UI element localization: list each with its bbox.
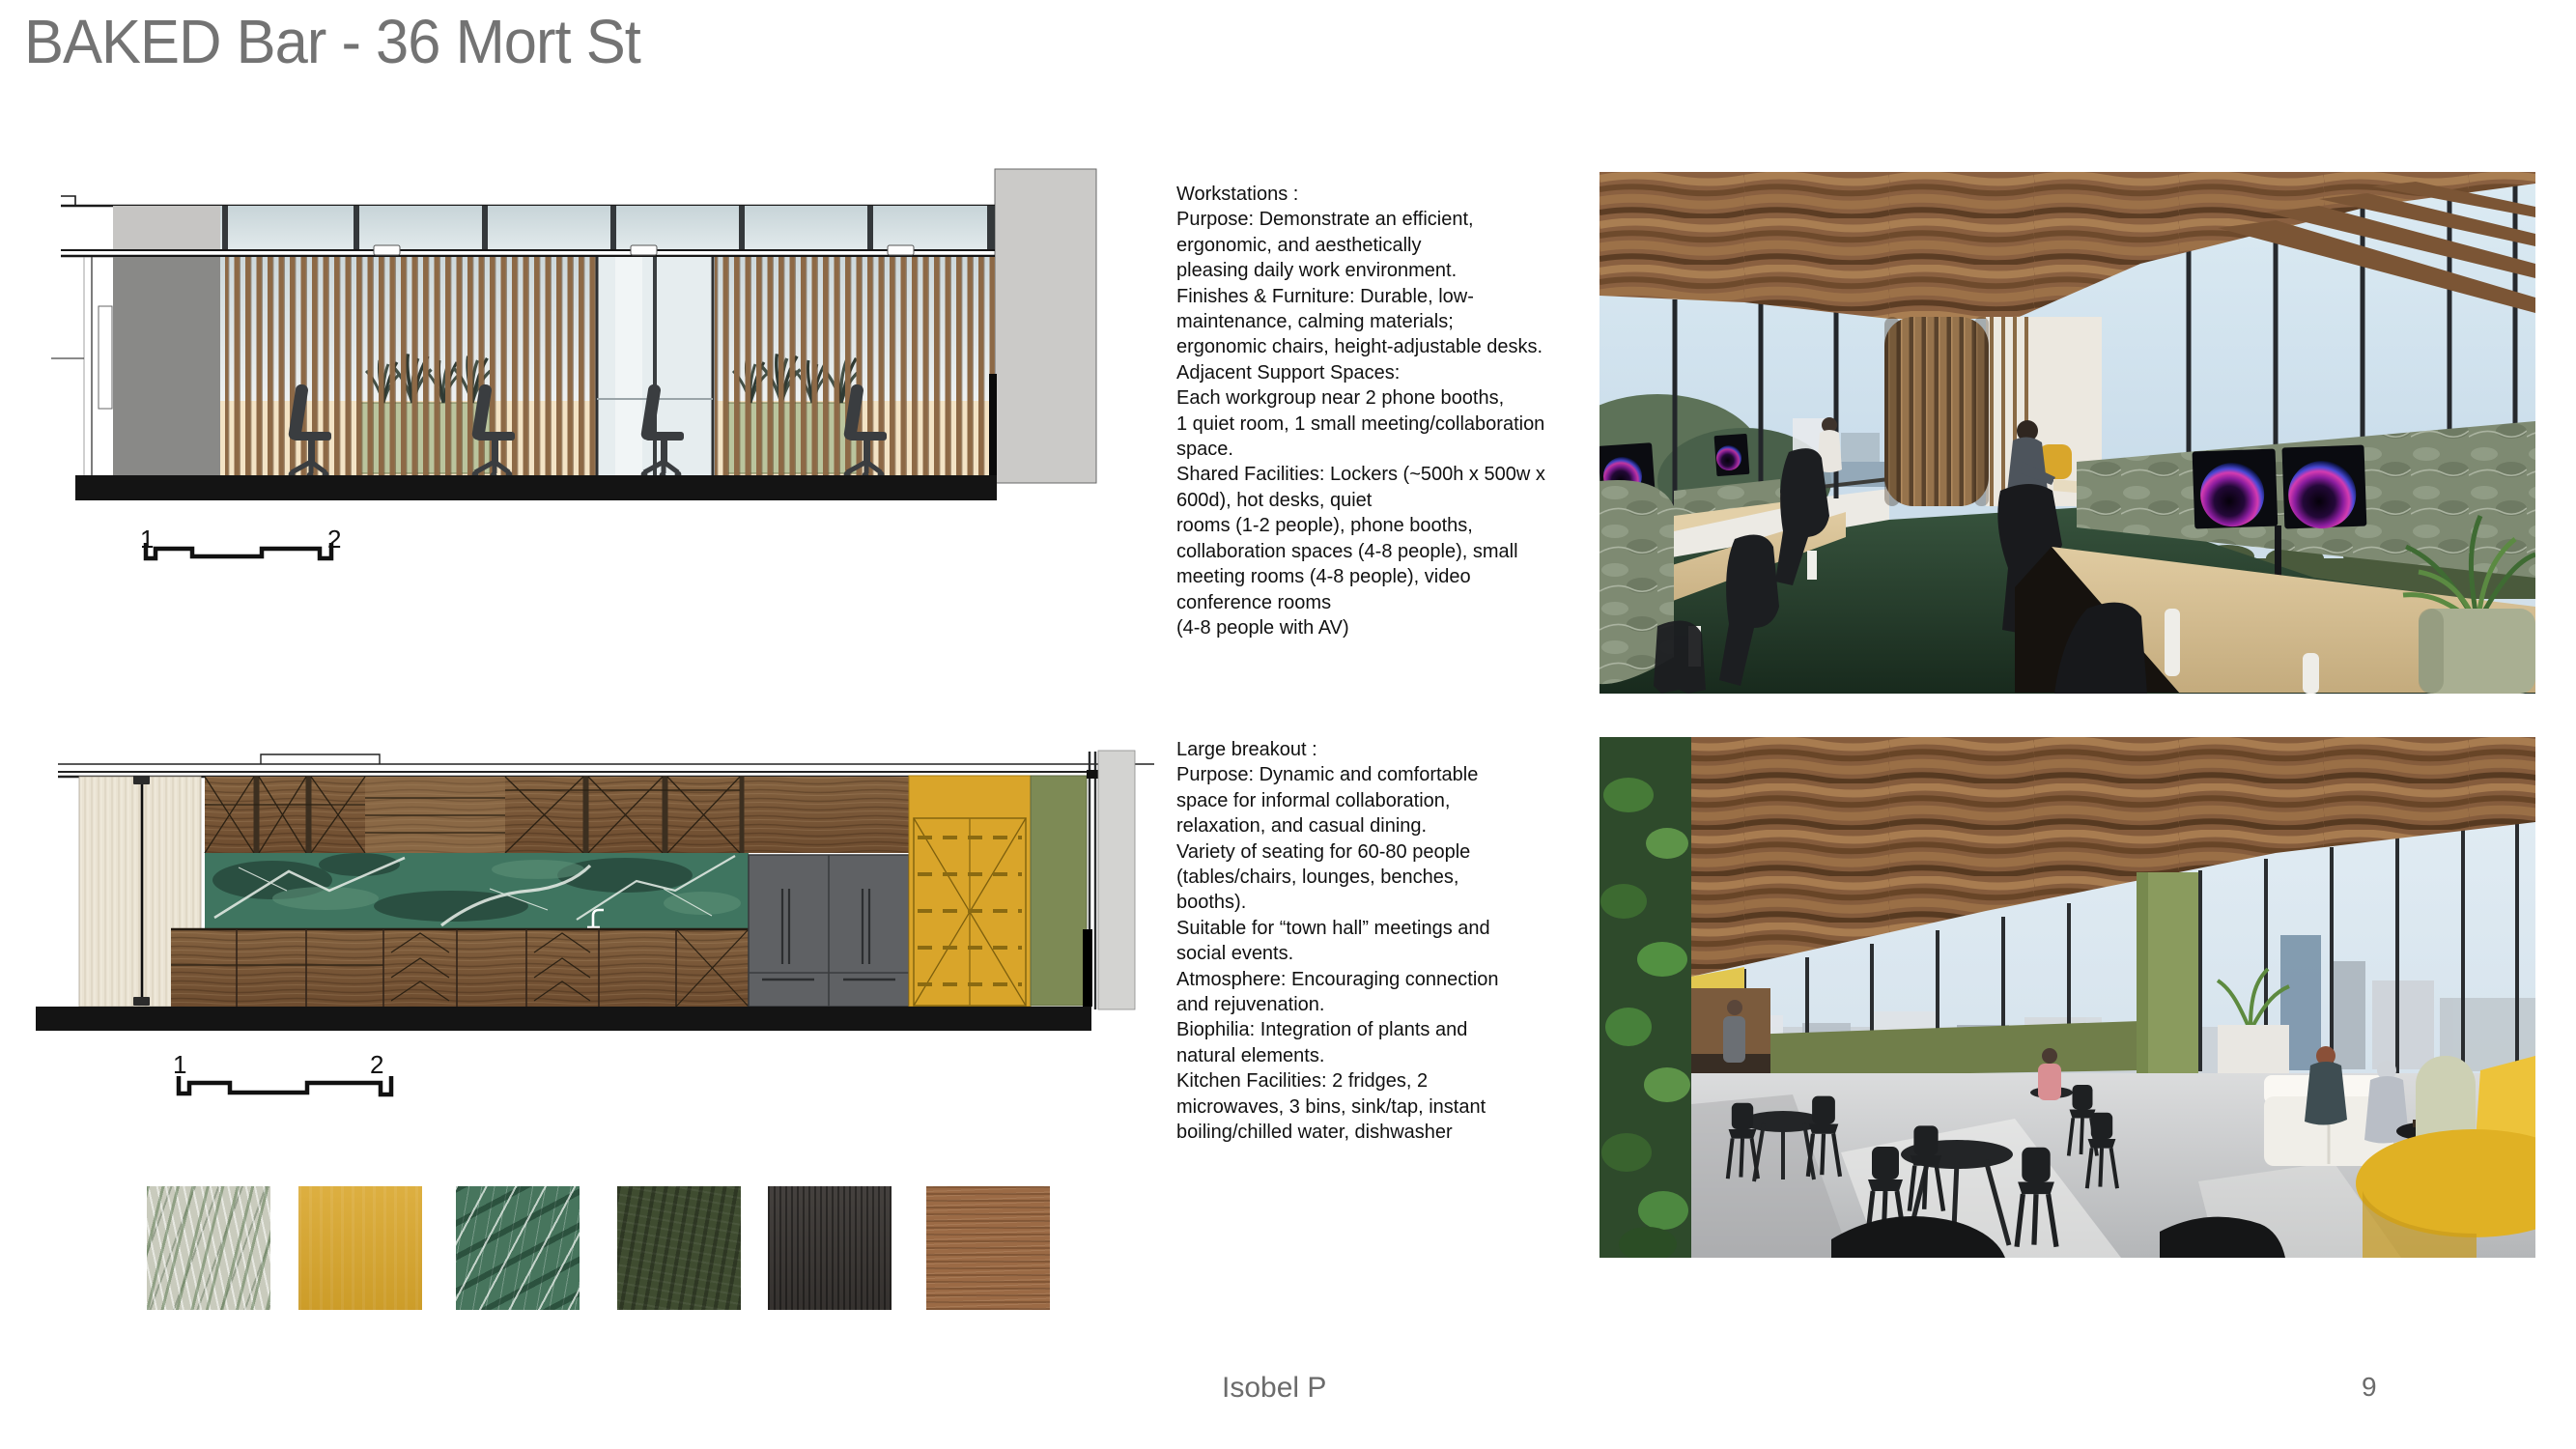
footer-page-number: 9 (2362, 1372, 2377, 1403)
wall-block-right (995, 169, 1096, 483)
green-marble-splashback (205, 853, 749, 929)
floor-slab (36, 1007, 1091, 1031)
lower-cabinets (171, 929, 749, 1007)
swatch-charcoal-timber (768, 1186, 892, 1310)
swatch-sage-speckled-fabric (147, 1186, 270, 1310)
large-breakout-heading: Large breakout : (1176, 737, 1640, 762)
elevation-scene (113, 257, 997, 478)
ceiling-line (61, 196, 995, 206)
scale-label-2: 2 (370, 1050, 383, 1079)
olive-panel (1031, 776, 1087, 1006)
slide: BAKED Bar - 36 Mort St (0, 0, 2576, 1449)
grey-fridge-unit (749, 855, 909, 1007)
page-title: BAKED Bar - 36 Mort St (24, 6, 640, 77)
swatch-walnut-timber (926, 1186, 1050, 1310)
swatch-mustard-laminate (298, 1186, 422, 1310)
workstations-photo (1599, 172, 2535, 694)
curved-slat-wall (1884, 317, 2102, 506)
swatch-green-marble (456, 1186, 580, 1310)
workstations-body: Purpose: Demonstrate an efficient, ergon… (1176, 207, 1640, 640)
footer-author: Isobel P (1222, 1372, 1326, 1405)
plant-wall (1599, 737, 1691, 1258)
clerestory-glazing (113, 206, 995, 250)
large-breakout-text: Large breakout : Purpose: Dynamic and co… (1176, 737, 1640, 1146)
floor-slab (75, 475, 997, 500)
drawing-breakout-kitchen-elevation: 1 2 (36, 744, 1156, 1111)
glass-partition (597, 257, 715, 475)
black-post (1083, 929, 1092, 1007)
mustard-cabinet (909, 776, 1031, 1007)
grey-column (1098, 751, 1135, 1009)
drawing-workstation-elevation: 1 2 (45, 111, 1098, 570)
large-breakout-photo (1599, 737, 2535, 1258)
workstations-heading: Workstations : (1176, 182, 1640, 207)
material-swatches (147, 1186, 1055, 1312)
wall-section-left (51, 257, 112, 475)
large-breakout-body: Purpose: Dynamic and comfortable space f… (1176, 762, 1640, 1145)
scale-label-1: 1 (173, 1050, 186, 1079)
upper-cabinets (205, 777, 909, 853)
ceiling-lines (58, 754, 1154, 777)
workstations-text: Workstations : Purpose: Demonstrate an e… (1176, 182, 1640, 640)
scale-bar: 1 2 (173, 1050, 391, 1094)
swatch-olive-green-fabric (617, 1186, 741, 1310)
scale-bar: 1 2 (140, 525, 341, 558)
